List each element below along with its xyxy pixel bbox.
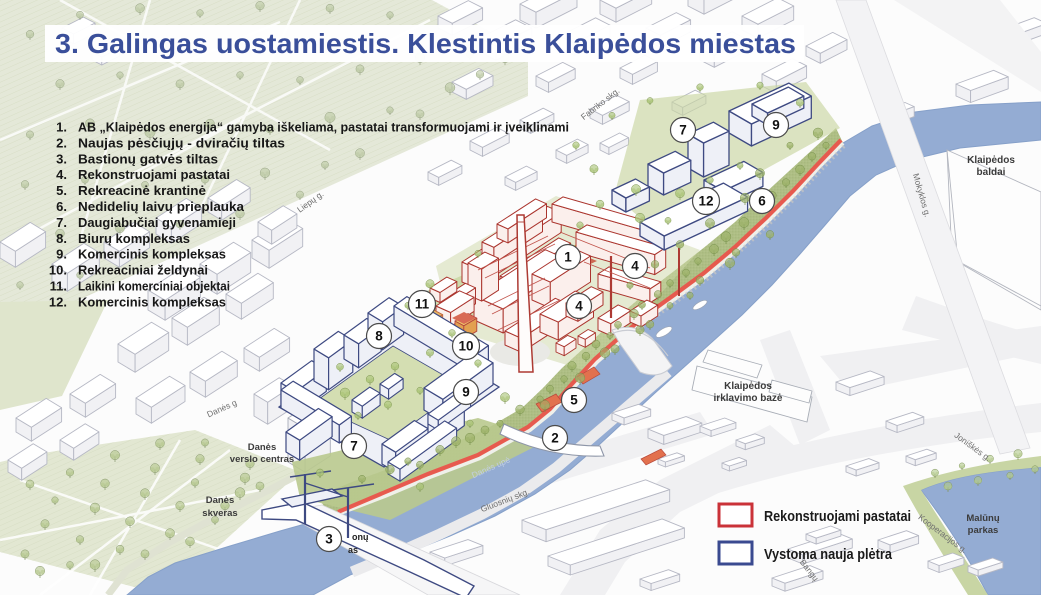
svg-text:Klaipėdos: Klaipėdos [724,381,772,392]
svg-text:9.: 9. [56,247,67,262]
svg-text:11: 11 [415,297,430,312]
svg-text:baldai: baldai [977,167,1006,178]
svg-text:5: 5 [570,393,578,408]
svg-text:Daugiabučiai gyvenamieji: Daugiabučiai gyvenamieji [78,215,236,230]
svg-text:parkas: parkas [968,525,999,536]
svg-text:skveras: skveras [202,508,237,519]
svg-text:12: 12 [698,194,713,209]
svg-text:10.: 10. [49,263,67,278]
svg-text:onų: onų [352,532,369,542]
svg-text:6.: 6. [56,199,67,214]
svg-text:7.: 7. [56,215,67,230]
svg-text:Rekreacinė krantinė: Rekreacinė krantinė [78,183,206,198]
svg-text:4.: 4. [56,167,67,182]
svg-text:Rekonstruojami pastatai: Rekonstruojami pastatai [78,167,230,182]
svg-text:Malūnų: Malūnų [966,513,999,524]
svg-text:3.: 3. [56,151,67,166]
svg-text:Danės: Danės [206,495,235,506]
svg-text:7: 7 [350,439,358,454]
svg-text:Biurų kompleksas: Biurų kompleksas [78,231,190,246]
svg-text:11.: 11. [50,279,67,294]
svg-text:1.: 1. [56,120,67,135]
svg-text:Laikini komerciniai objektai: Laikini komerciniai objektai [78,279,230,294]
svg-text:Bastionų gatvės tiltas: Bastionų gatvės tiltas [78,151,218,166]
svg-text:AB „Klaipėdos energija“ gamyba: AB „Klaipėdos energija“ gamyba iškeliama… [78,120,569,135]
svg-text:2: 2 [551,431,559,446]
svg-text:Komercinis kompleksas: Komercinis kompleksas [78,247,226,262]
svg-text:9: 9 [772,118,780,133]
svg-text:Klaipėdos: Klaipėdos [967,155,1015,166]
svg-text:irklavimo bazė: irklavimo bazė [714,393,783,404]
svg-text:Komercinis kompleksas: Komercinis kompleksas [78,294,226,309]
svg-text:Naujas pėsčiųjų - dviračių til: Naujas pėsčiųjų - dviračių tiltas [78,135,285,150]
svg-text:5.: 5. [56,183,67,198]
svg-text:4: 4 [631,259,639,274]
svg-text:2.: 2. [56,135,67,150]
svg-text:verslo centras: verslo centras [230,454,294,465]
svg-text:1: 1 [564,250,572,265]
svg-text:Vystoma nauja plėtra: Vystoma nauja plėtra [764,546,893,563]
svg-text:7: 7 [679,123,687,138]
svg-text:as: as [348,545,358,555]
svg-text:9: 9 [462,385,470,400]
svg-text:3: 3 [325,532,333,547]
svg-text:3. Galingas uostamiestis. Kles: 3. Galingas uostamiestis. Klestintis Kla… [55,28,796,59]
svg-text:4: 4 [575,299,583,314]
svg-text:8: 8 [375,329,383,344]
svg-text:12.: 12. [49,294,67,309]
svg-text:Rekreaciniai želdynai: Rekreaciniai želdynai [78,263,208,278]
svg-text:6: 6 [758,194,766,209]
svg-text:Rekonstruojami pastatai: Rekonstruojami pastatai [764,508,911,525]
svg-text:8.: 8. [56,231,67,246]
svg-text:Nedidelių laivų prieplauka: Nedidelių laivų prieplauka [78,199,245,214]
svg-text:Danės: Danės [248,442,277,453]
svg-text:10: 10 [458,339,473,354]
